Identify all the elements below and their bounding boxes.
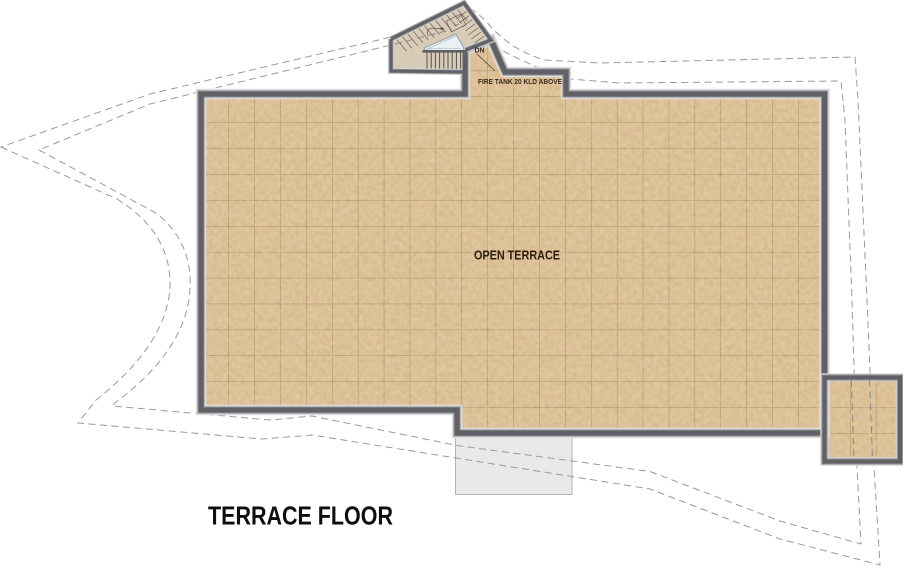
svg-text:DN: DN bbox=[475, 47, 485, 54]
svg-text:TERRACE FLOOR: TERRACE FLOOR bbox=[208, 501, 393, 531]
svg-text:FIRE TANK 20 KLD ABOVE: FIRE TANK 20 KLD ABOVE bbox=[478, 77, 562, 86]
svg-text:OPEN TERRACE: OPEN TERRACE bbox=[474, 249, 560, 263]
